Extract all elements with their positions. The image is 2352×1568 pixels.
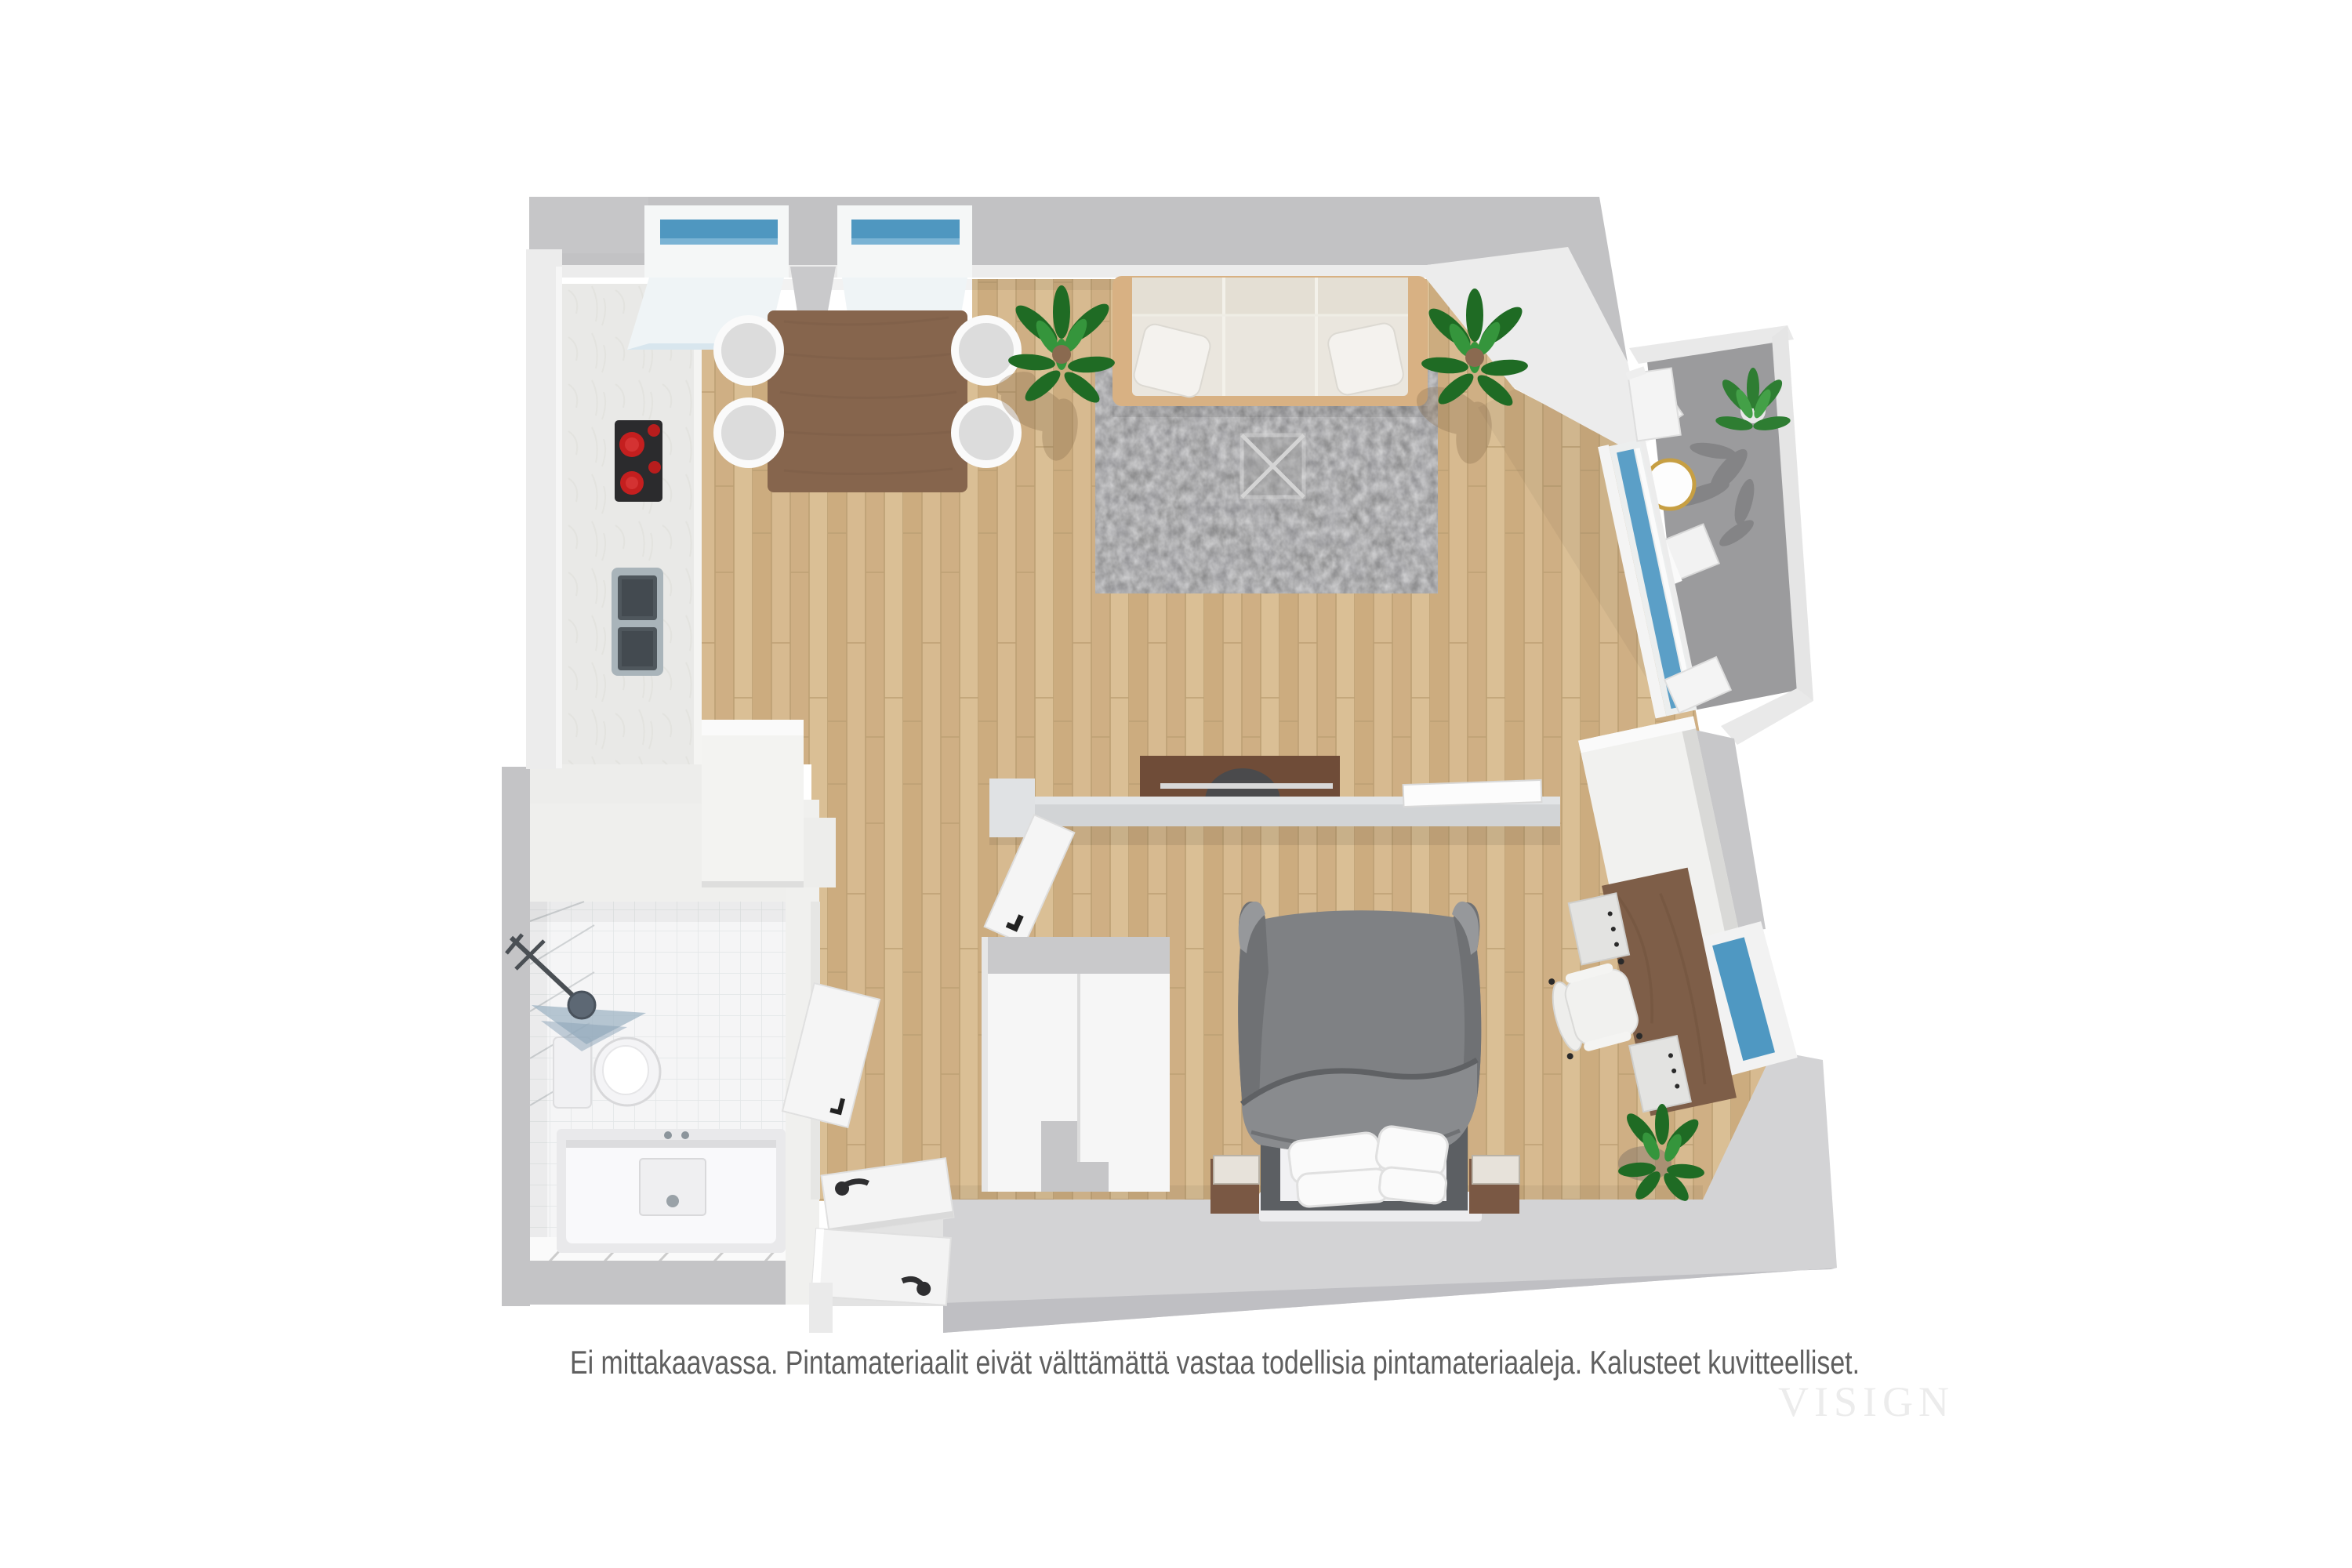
svg-text:VISIGN: VISIGN xyxy=(1778,1378,1955,1425)
svg-text:Ei mittakaavassa. Pintamateria: Ei mittakaavassa. Pintamateriaalit eivät… xyxy=(570,1344,1860,1381)
